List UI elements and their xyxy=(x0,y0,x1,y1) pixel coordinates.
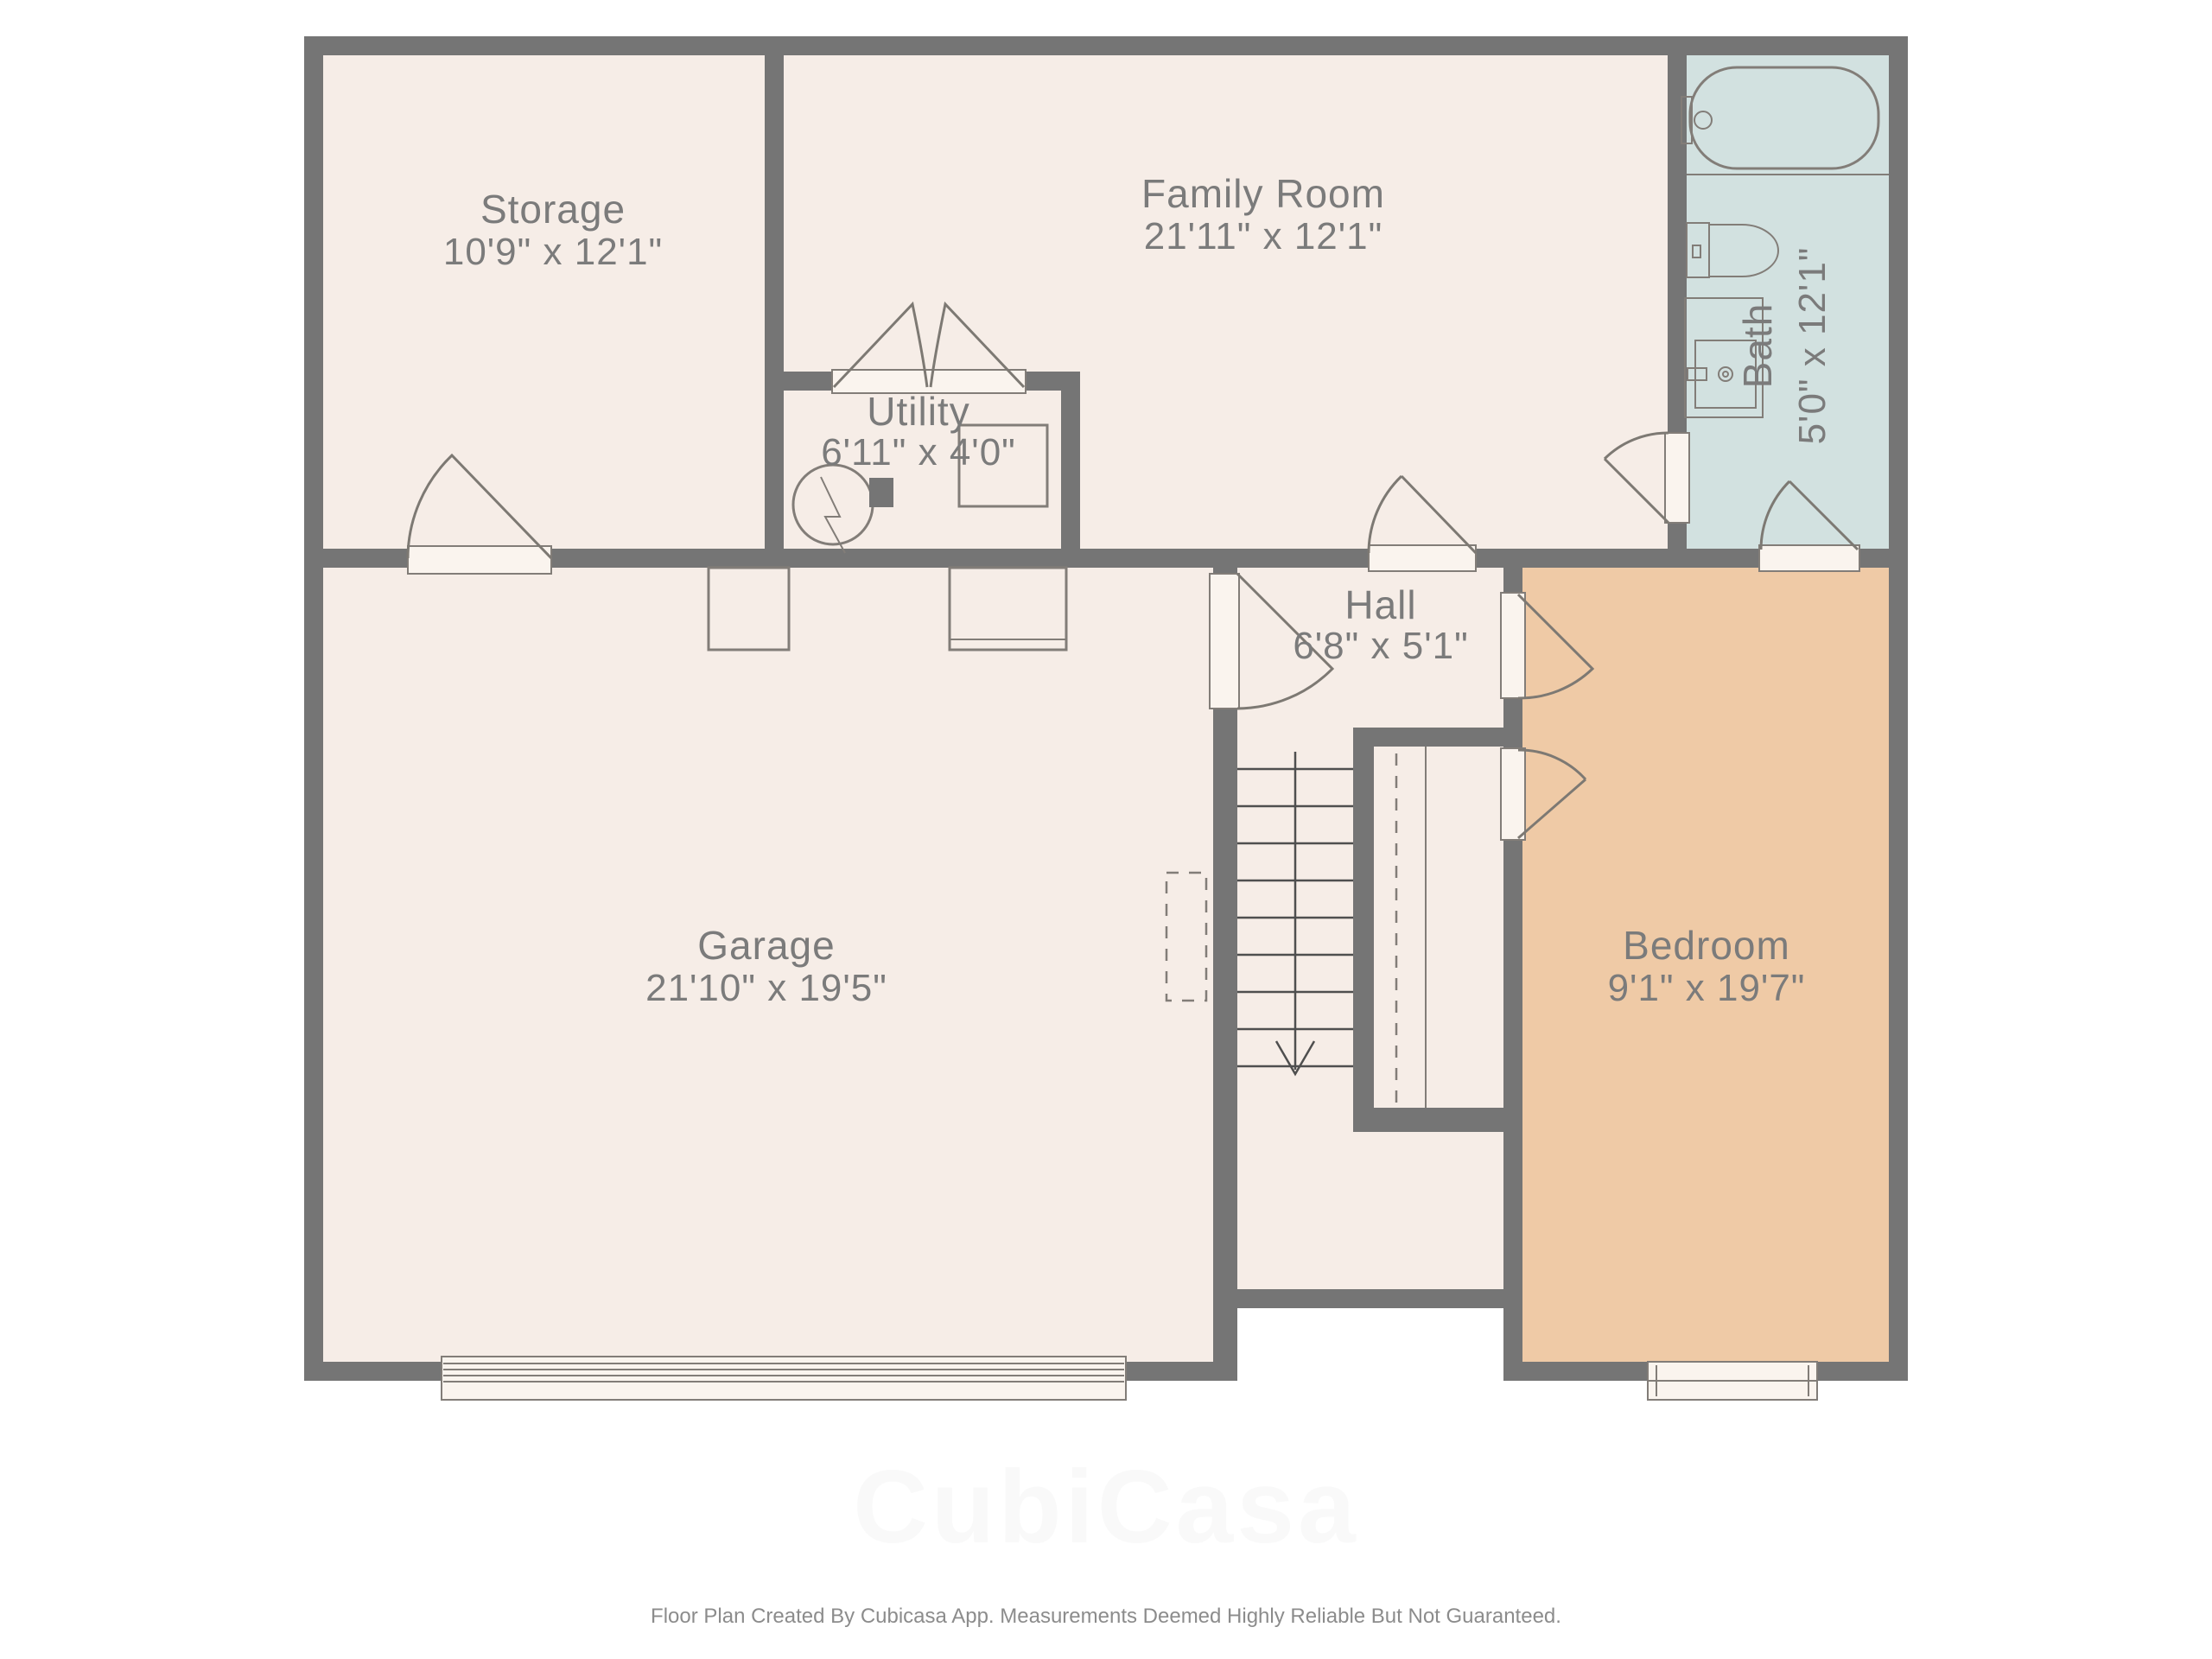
wall-stairs-right xyxy=(1353,728,1374,1132)
family-room-label: Family Room xyxy=(1141,171,1385,216)
exterior-notch xyxy=(1237,1308,1503,1438)
footer-disclaimer: Floor Plan Created By Cubicasa App. Meas… xyxy=(651,1605,1561,1628)
floor-plan-canvas: Storage 10'9" x 12'1" Family Room 21'11"… xyxy=(0,0,2212,1659)
family-hall-door-threshold xyxy=(1369,545,1476,571)
bath-label: Bath xyxy=(1735,303,1780,389)
utility-label: Utility xyxy=(867,389,969,434)
storage-door-threshold xyxy=(408,546,551,574)
garage-hall-door-opening xyxy=(1210,574,1239,709)
wall-outer-right xyxy=(1889,36,1908,1381)
garage-door-icon xyxy=(442,1357,1126,1400)
electrical-box-icon xyxy=(869,478,893,507)
wall-landing-bottom xyxy=(1237,1289,1505,1308)
bedroom-upper-door-opening xyxy=(1501,593,1525,698)
upper-floor-area xyxy=(323,55,1889,549)
storage-label: Storage xyxy=(480,187,626,232)
garage-dims: 21'10" x 19'5" xyxy=(645,967,887,1009)
bedroom-label: Bedroom xyxy=(1623,923,1790,968)
wall-closet-top xyxy=(1353,728,1505,747)
storage-dims: 10'9" x 12'1" xyxy=(443,231,663,273)
bedroom-window-icon xyxy=(1648,1362,1817,1400)
wall-utility-right xyxy=(1061,391,1080,549)
wall-outer-left xyxy=(304,36,323,1381)
wall-outer-top xyxy=(304,36,1908,55)
bedroom-dims: 9'1" x 19'7" xyxy=(1608,967,1806,1009)
floor-plan-page: Storage 10'9" x 12'1" Family Room 21'11"… xyxy=(0,0,2212,1659)
wall-storage-family xyxy=(765,55,784,549)
bath-floor xyxy=(1687,55,1889,549)
utility-dims: 6'11" x 4'0" xyxy=(821,431,1016,474)
bedroom-lower-door-opening xyxy=(1501,748,1525,840)
hall-dims: 6'8" x 5'1" xyxy=(1293,625,1468,667)
family-room-dims: 21'11" x 12'1" xyxy=(1144,215,1383,257)
wall-closet-bottom xyxy=(1353,1108,1522,1132)
bath-dims: 5'0" x 12'1" xyxy=(1791,247,1834,445)
cubicasa-watermark: CubiCasa xyxy=(853,1449,1358,1565)
garage-label: Garage xyxy=(697,923,835,968)
bath-bottom-door-threshold xyxy=(1759,545,1859,571)
bath-left-door-opening xyxy=(1665,433,1689,523)
hall-label: Hall xyxy=(1344,582,1416,627)
